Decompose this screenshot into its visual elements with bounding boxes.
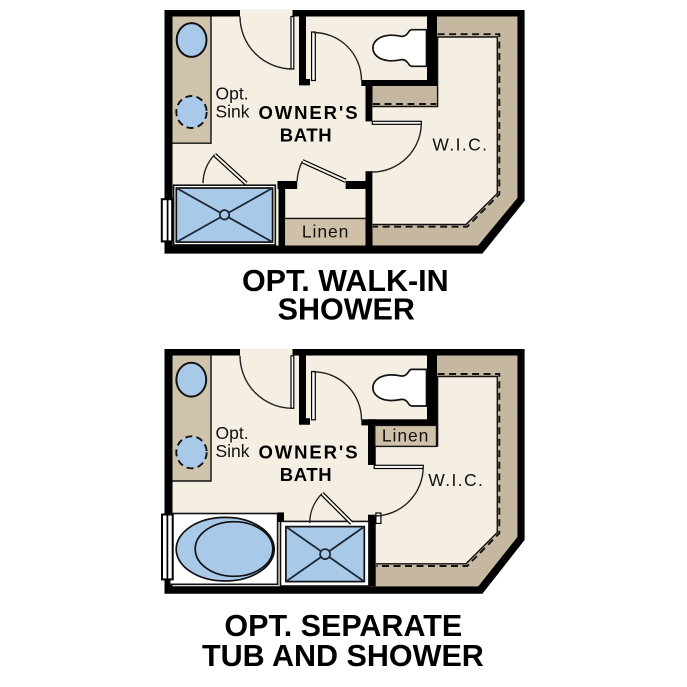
svg-text:SHOWER: SHOWER bbox=[278, 293, 415, 327]
svg-text:W.I.C.: W.I.C. bbox=[428, 470, 484, 490]
svg-text:OWNER'S: OWNER'S bbox=[259, 442, 360, 463]
svg-text:BATH: BATH bbox=[280, 464, 332, 485]
svg-text:Sink: Sink bbox=[216, 101, 250, 121]
svg-text:Linen: Linen bbox=[302, 222, 349, 242]
svg-text:Sink: Sink bbox=[216, 441, 250, 461]
svg-text:W.I.C.: W.I.C. bbox=[432, 135, 488, 155]
svg-text:BATH: BATH bbox=[280, 124, 332, 145]
svg-text:OWNER'S: OWNER'S bbox=[259, 102, 360, 123]
svg-text:Linen: Linen bbox=[382, 425, 429, 445]
svg-text:TUB AND SHOWER: TUB AND SHOWER bbox=[202, 639, 484, 673]
